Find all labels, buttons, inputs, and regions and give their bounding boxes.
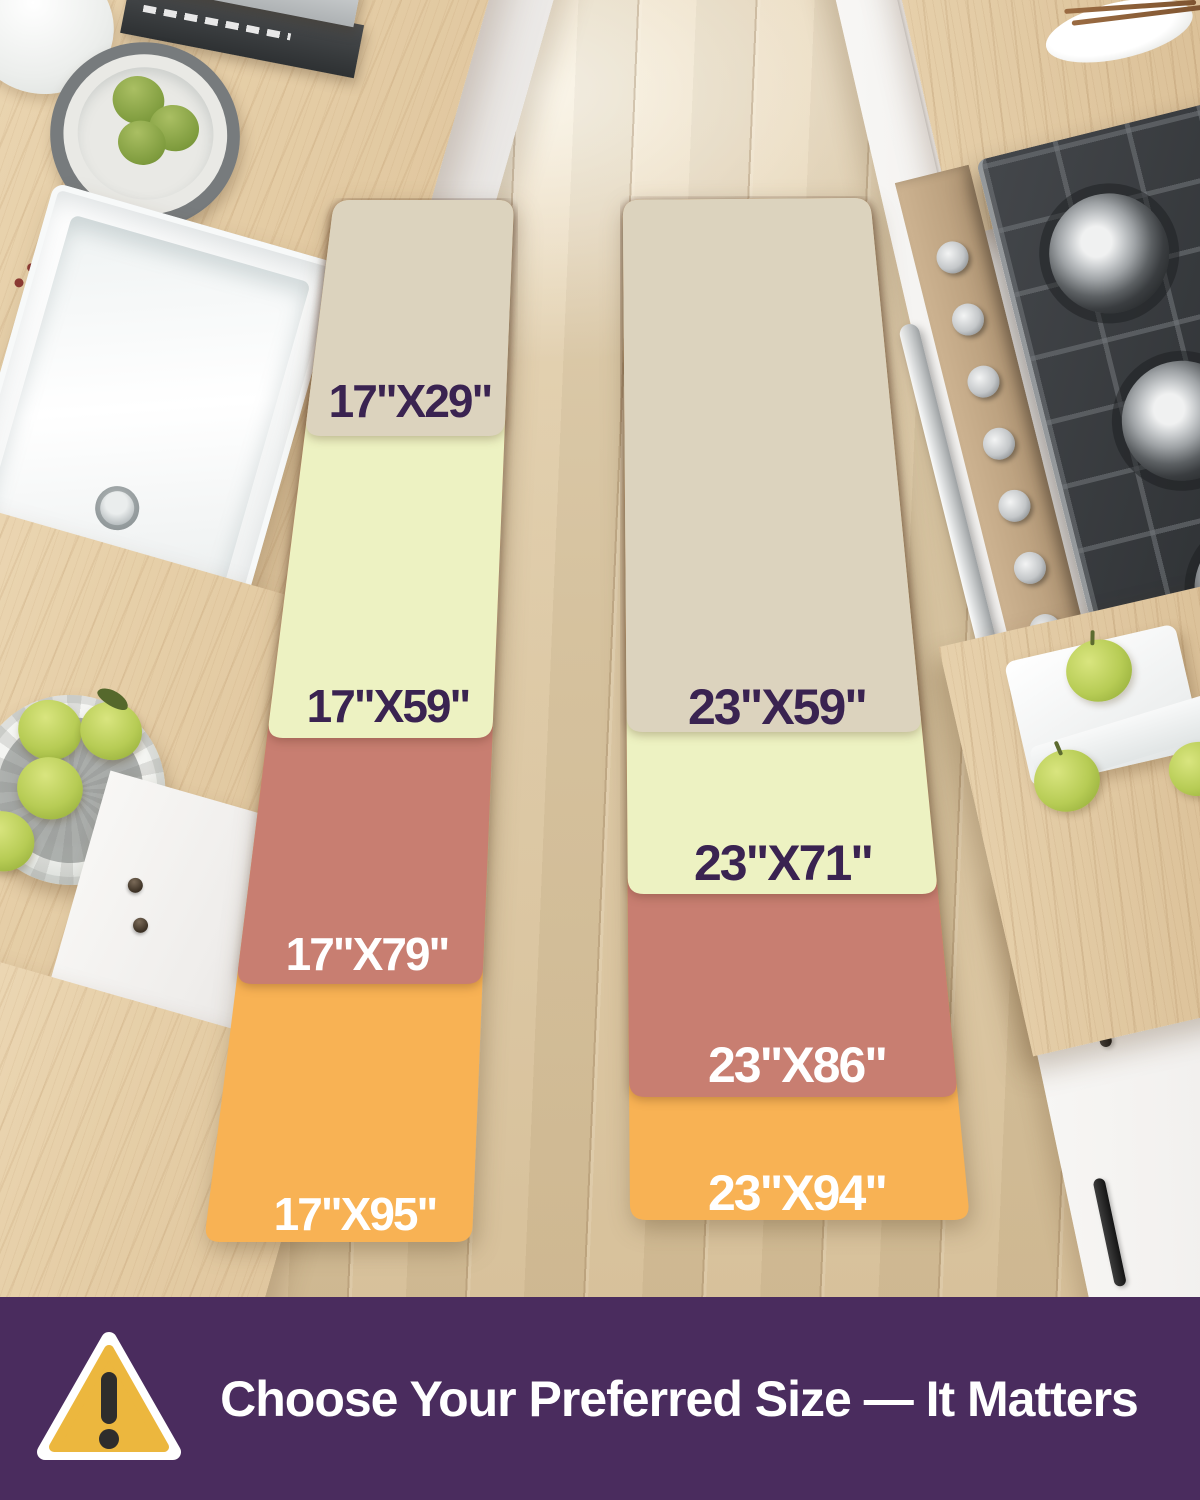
size-label-17x95: 17"X95" [274,1188,437,1240]
banner-headline: Choose Your Preferred Size — It Matters [184,1370,1200,1428]
runner-chart-23in-svg: 23"X59" 23"X71" 23"X86" 23"X94" [620,196,980,1226]
runner-chart-23in: 23"X59" 23"X71" 23"X86" 23"X94" [620,196,980,1226]
product-infographic: 17"X29" 17"X59" 17"X79" 17"X95" 23"X59" … [0,0,1200,1500]
apple-stem [1090,630,1094,645]
stove-knob [995,486,1034,525]
size-label-17x59: 17"X59" [307,680,470,732]
stove-knob [1011,549,1050,588]
size-label-23x71: 23"X71" [694,835,872,891]
exclamation-dot [99,1429,119,1449]
exclamation-bar [101,1372,117,1424]
warning-triangle-icon [34,1326,184,1471]
sink-drain [90,481,144,535]
cabinet-knob [131,916,150,935]
runner-chart-17in-svg: 17"X29" 17"X59" 17"X79" 17"X95" [198,198,518,1248]
size-label-17x79: 17"X79" [286,928,449,980]
cabinet-knob [126,876,145,895]
mat-23x59 [623,198,921,732]
stove-burner [1109,348,1200,493]
stove-knob [980,424,1019,463]
warning-triangle-svg [34,1326,184,1466]
cabinet-bar-handle [1092,1177,1127,1287]
size-label-17x29: 17"X29" [329,375,492,427]
berry [13,277,24,288]
size-label-23x59: 23"X59" [688,679,866,735]
bottom-banner: Choose Your Preferred Size — It Matters [0,1297,1200,1500]
stove-burner [1036,181,1181,326]
size-label-23x86: 23"X86" [708,1037,886,1093]
size-label-23x94: 23"X94" [708,1165,886,1221]
runner-chart-17in: 17"X29" 17"X59" 17"X79" 17"X95" [198,198,518,1248]
